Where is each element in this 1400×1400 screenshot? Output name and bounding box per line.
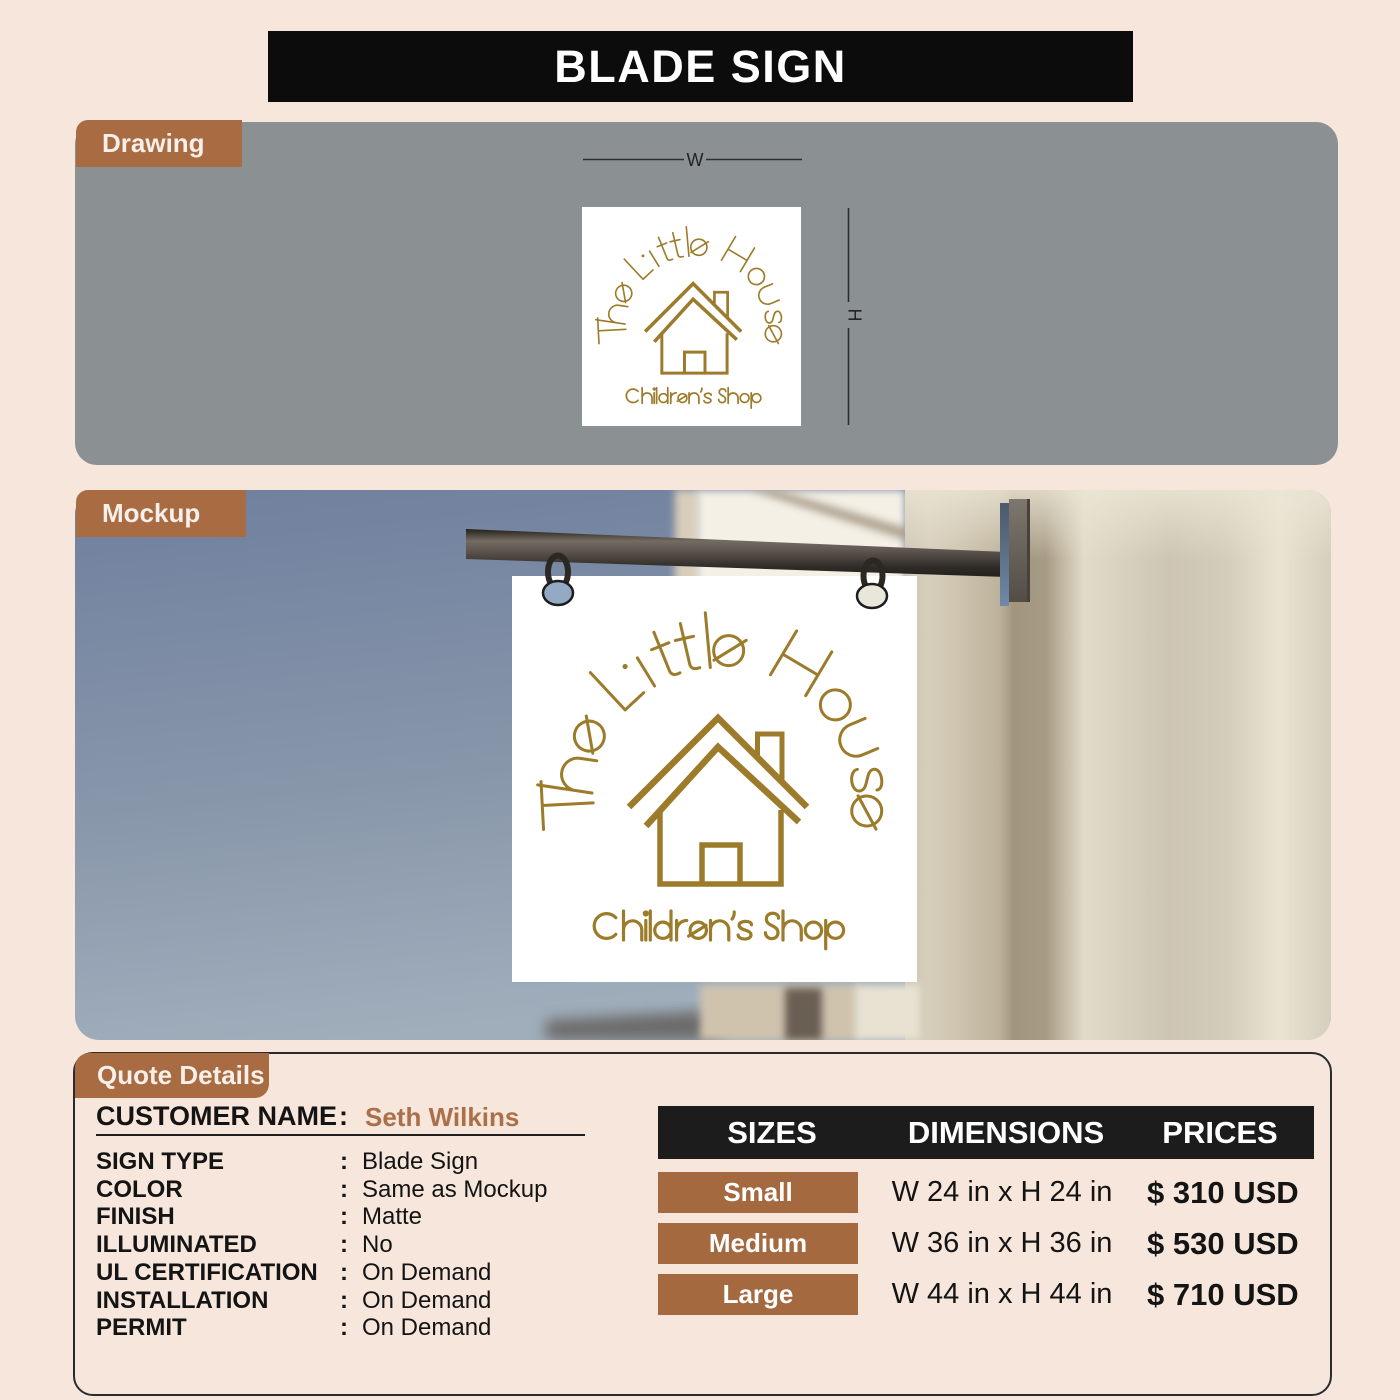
svg-text:W: W [687,150,704,170]
svg-text:H: H [845,309,865,322]
